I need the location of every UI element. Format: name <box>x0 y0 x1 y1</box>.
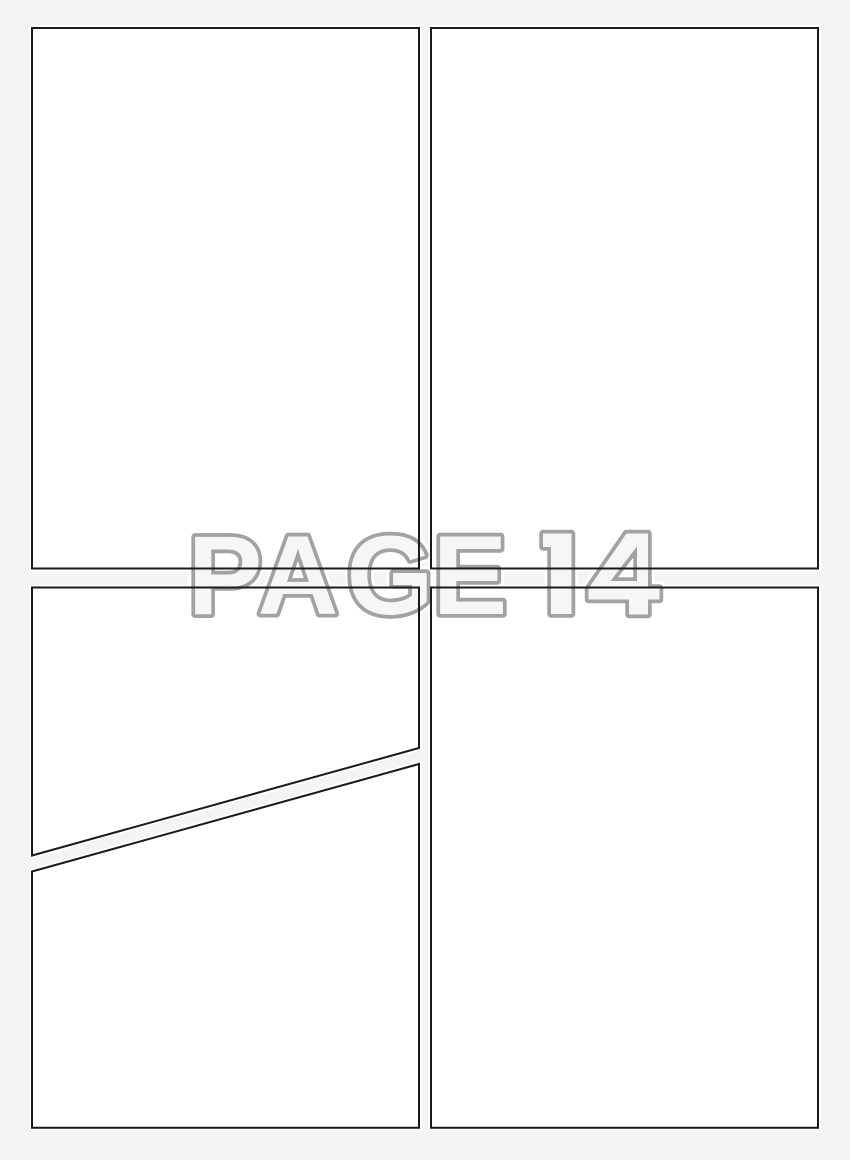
svg-text:PAGE: PAGE <box>188 513 508 638</box>
